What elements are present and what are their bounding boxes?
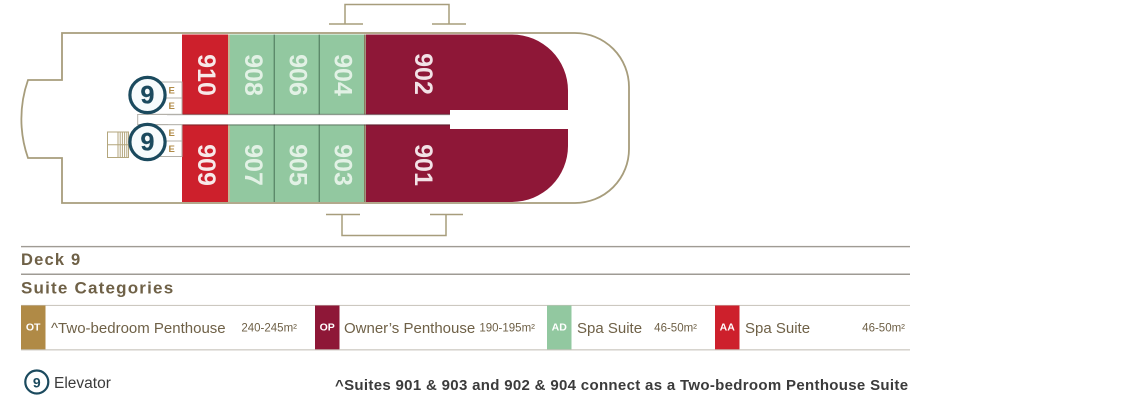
svg-text:E: E: [169, 128, 175, 139]
svg-text:903: 903: [329, 144, 357, 186]
svg-text:Suite Categories: Suite Categories: [21, 279, 174, 298]
svg-text:9: 9: [141, 129, 155, 157]
svg-text:Deck 9: Deck 9: [21, 251, 81, 269]
svg-text:910: 910: [192, 54, 220, 96]
svg-text:909: 909: [192, 144, 220, 186]
svg-text:Spa Suite: Spa Suite: [577, 320, 642, 337]
svg-text:240-245m²: 240-245m²: [241, 323, 297, 335]
svg-text:46-50m²: 46-50m²: [654, 323, 697, 335]
svg-text:9: 9: [33, 375, 41, 391]
svg-text:902: 902: [409, 53, 437, 95]
svg-text:E: E: [169, 86, 175, 97]
svg-text:908: 908: [239, 54, 267, 96]
svg-text:E: E: [169, 101, 175, 112]
svg-text:^Suites 901 & 903 and 902 & 90: ^Suites 901 & 903 and 902 & 904 connect …: [335, 377, 908, 394]
svg-text:OT: OT: [26, 322, 41, 334]
svg-text:9: 9: [141, 82, 155, 110]
svg-text:^Two-bedroom Penthouse: ^Two-bedroom Penthouse: [51, 320, 226, 337]
svg-text:901: 901: [409, 144, 437, 186]
svg-text:AD: AD: [552, 322, 568, 334]
svg-text:904: 904: [329, 54, 357, 96]
svg-text:Elevator: Elevator: [54, 375, 111, 392]
svg-text:190-195m²: 190-195m²: [479, 323, 535, 335]
svg-text:907: 907: [239, 144, 267, 186]
svg-text:E: E: [169, 144, 175, 155]
svg-text:46-50m²: 46-50m²: [862, 323, 905, 335]
svg-text:Owner’s Penthouse: Owner’s Penthouse: [344, 320, 475, 337]
svg-text:OP: OP: [320, 322, 335, 334]
svg-text:Spa Suite: Spa Suite: [745, 320, 810, 337]
svg-text:906: 906: [284, 54, 312, 96]
svg-text:905: 905: [284, 144, 312, 186]
svg-text:AA: AA: [720, 322, 736, 334]
